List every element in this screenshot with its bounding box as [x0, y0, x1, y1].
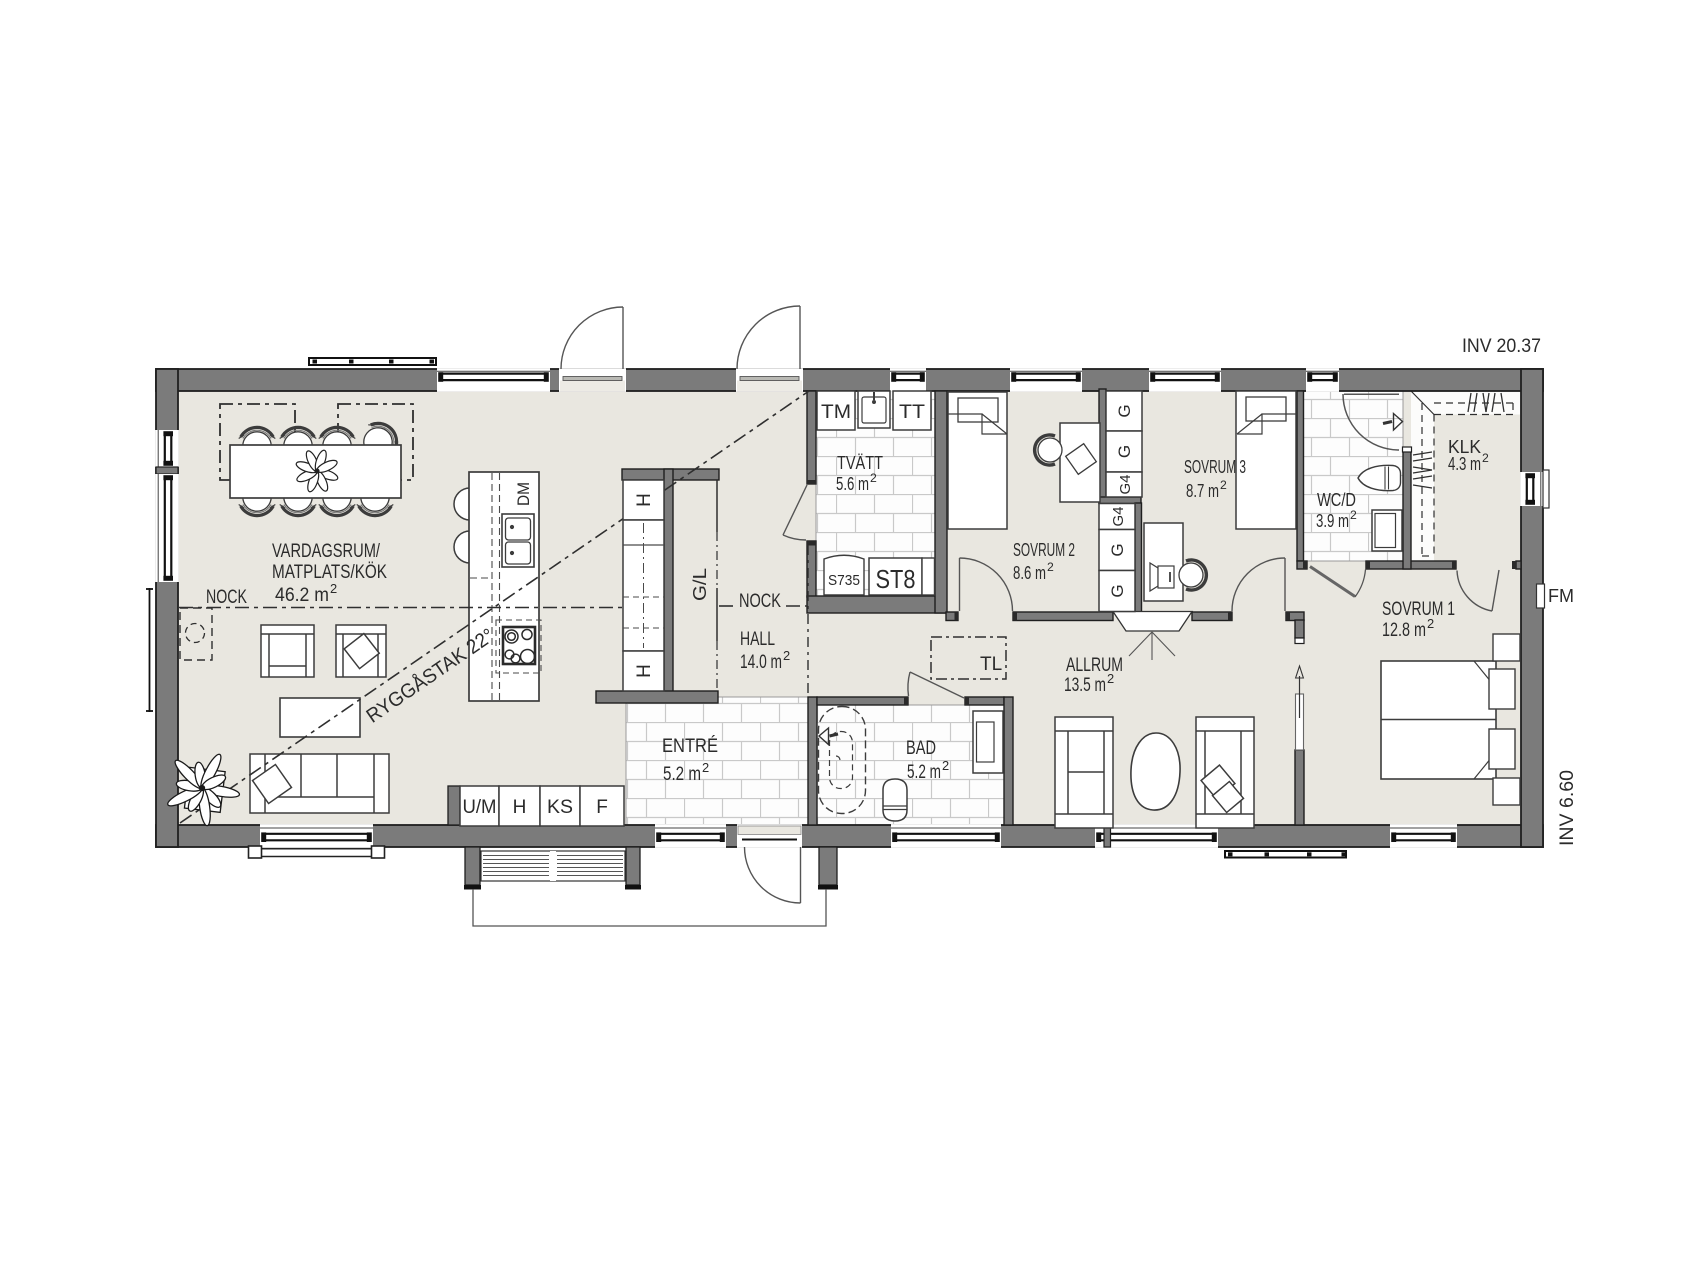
svg-text:MATPLATS/KÖK: MATPLATS/KÖK: [272, 562, 387, 583]
svg-text:46.2 m: 46.2 m: [275, 585, 329, 606]
svg-text:5.2 m: 5.2 m: [663, 764, 701, 785]
svg-text:INV 20.37: INV 20.37: [1462, 336, 1541, 357]
svg-text:HALL: HALL: [740, 629, 775, 650]
svg-text:FM: FM: [1548, 586, 1574, 606]
svg-text:2: 2: [1047, 560, 1054, 574]
svg-text:2: 2: [1220, 478, 1227, 492]
svg-text:G4: G4: [1117, 474, 1134, 494]
svg-text:3.9 m: 3.9 m: [1316, 511, 1349, 531]
svg-text:5.6 m: 5.6 m: [836, 474, 869, 494]
svg-text:NOCK: NOCK: [739, 591, 781, 612]
svg-text:TVÄTT: TVÄTT: [837, 453, 883, 473]
svg-text:U/M: U/M: [463, 797, 497, 818]
svg-text:5.2 m: 5.2 m: [907, 762, 941, 783]
svg-text:14.0 m: 14.0 m: [740, 652, 782, 673]
svg-text:H: H: [634, 493, 655, 507]
svg-text:2: 2: [1427, 616, 1434, 631]
svg-text:WC/D: WC/D: [1317, 490, 1356, 510]
svg-text:12.8 m: 12.8 m: [1382, 620, 1426, 641]
svg-text:2: 2: [1107, 671, 1114, 686]
svg-text:TL: TL: [980, 654, 1002, 675]
svg-text:TM: TM: [821, 402, 851, 423]
svg-text:H: H: [634, 664, 655, 678]
svg-text:G: G: [1108, 543, 1127, 556]
svg-text:VARDAGSRUM/: VARDAGSRUM/: [272, 541, 381, 562]
svg-text:8.7 m: 8.7 m: [1186, 481, 1219, 501]
svg-text:BAD: BAD: [906, 738, 936, 759]
svg-text:8.6 m: 8.6 m: [1013, 563, 1046, 583]
svg-text:KS: KS: [547, 797, 573, 818]
svg-text:SOVRUM 1: SOVRUM 1: [1382, 599, 1455, 620]
svg-text:13.5 m: 13.5 m: [1064, 675, 1106, 696]
svg-text:G: G: [1115, 404, 1134, 417]
svg-text:F: F: [596, 797, 608, 818]
svg-text:2: 2: [870, 471, 877, 485]
svg-text:ALLRUM: ALLRUM: [1066, 655, 1123, 676]
svg-text:2: 2: [1482, 451, 1489, 465]
svg-text:DM: DM: [514, 482, 533, 506]
svg-text:INV 6.60: INV 6.60: [1557, 770, 1578, 846]
svg-text:2: 2: [783, 648, 790, 663]
svg-text:G: G: [1108, 584, 1127, 597]
svg-text:G: G: [1115, 445, 1134, 458]
svg-text:4.3 m: 4.3 m: [1448, 454, 1481, 474]
svg-text:2: 2: [942, 758, 949, 773]
svg-text:TT: TT: [899, 402, 925, 423]
svg-text:2: 2: [1350, 508, 1357, 522]
svg-text:H: H: [513, 797, 527, 818]
svg-text:SOVRUM 2: SOVRUM 2: [1013, 540, 1075, 560]
svg-text:NOCK: NOCK: [206, 587, 247, 608]
svg-text:SOVRUM 3: SOVRUM 3: [1184, 457, 1246, 477]
svg-text:ST8: ST8: [876, 564, 916, 594]
svg-text:S735: S735: [828, 573, 860, 589]
svg-text:2: 2: [330, 581, 337, 596]
svg-text:G/L: G/L: [690, 568, 710, 601]
svg-text:2: 2: [702, 760, 709, 775]
svg-text:G4: G4: [1110, 506, 1127, 526]
svg-text:ENTRÉ: ENTRÉ: [662, 736, 718, 757]
